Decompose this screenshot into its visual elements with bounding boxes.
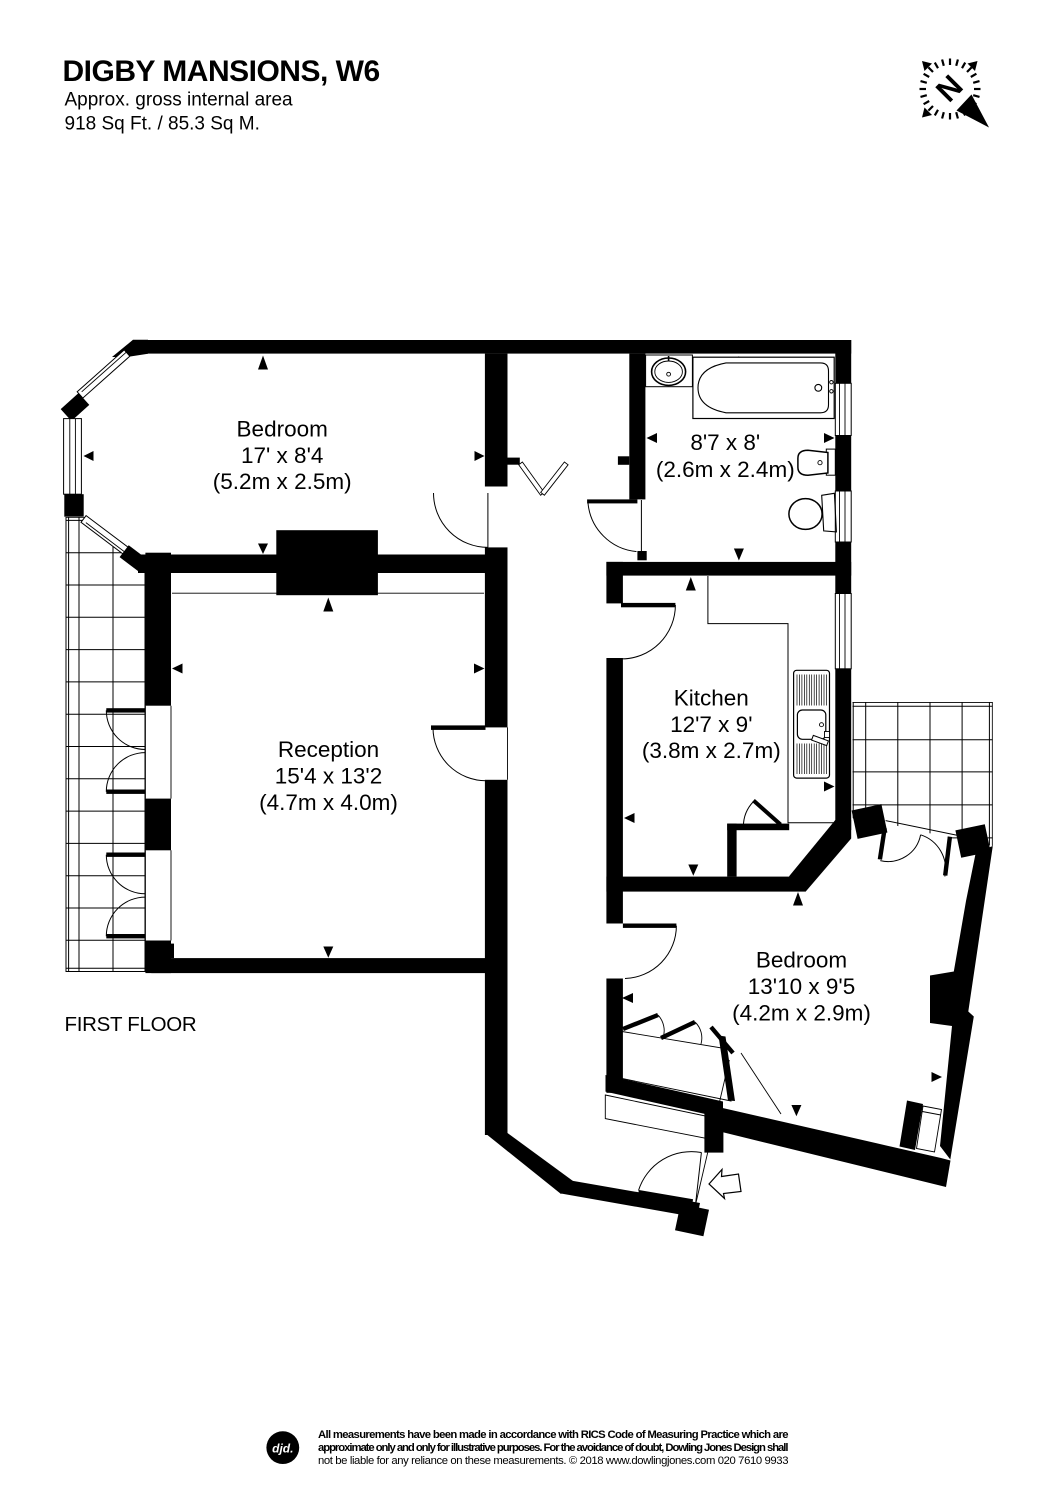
svg-text:All measurements have been mad: All measurements have been made in accor… [318, 1429, 789, 1441]
svg-text:Bedroom: Bedroom [756, 948, 847, 973]
svg-text:Reception: Reception [278, 737, 379, 762]
svg-text:Approx. gross internal area: Approx. gross internal area [65, 90, 294, 111]
svg-text:918 Sq Ft. / 85.3 Sq M.: 918 Sq Ft. / 85.3 Sq M. [65, 114, 260, 135]
svg-text:djd.: djd. [272, 1442, 293, 1456]
svg-text:FIRST FLOOR: FIRST FLOOR [65, 1013, 197, 1036]
svg-text:17' x 8'4: 17' x 8'4 [241, 443, 323, 468]
svg-text:DIGBY MANSIONS, W6: DIGBY MANSIONS, W6 [63, 55, 380, 88]
svg-text:(3.8m x 2.7m): (3.8m x 2.7m) [642, 738, 781, 763]
svg-text:(5.2m x 2.5m): (5.2m x 2.5m) [213, 469, 352, 494]
svg-text:Bedroom: Bedroom [237, 417, 328, 442]
svg-text:(4.2m x 2.9m): (4.2m x 2.9m) [732, 1001, 871, 1026]
svg-text:8'7 x 8': 8'7 x 8' [690, 430, 760, 455]
svg-text:13'10 x 9'5: 13'10 x 9'5 [748, 974, 855, 999]
svg-text:(2.6m x 2.4m): (2.6m x 2.4m) [656, 457, 795, 482]
svg-text:not be liable for any reliance: not be liable for any reliance on these … [318, 1455, 789, 1467]
svg-text:approximate only and only for: approximate only and only for illustrati… [318, 1442, 789, 1454]
svg-text:12'7 x 9': 12'7 x 9' [670, 712, 752, 737]
svg-text:Kitchen: Kitchen [674, 686, 749, 711]
svg-text:(4.7m x 4.0m): (4.7m x 4.0m) [259, 790, 398, 815]
svg-text:15'4 x 13'2: 15'4 x 13'2 [275, 764, 382, 789]
